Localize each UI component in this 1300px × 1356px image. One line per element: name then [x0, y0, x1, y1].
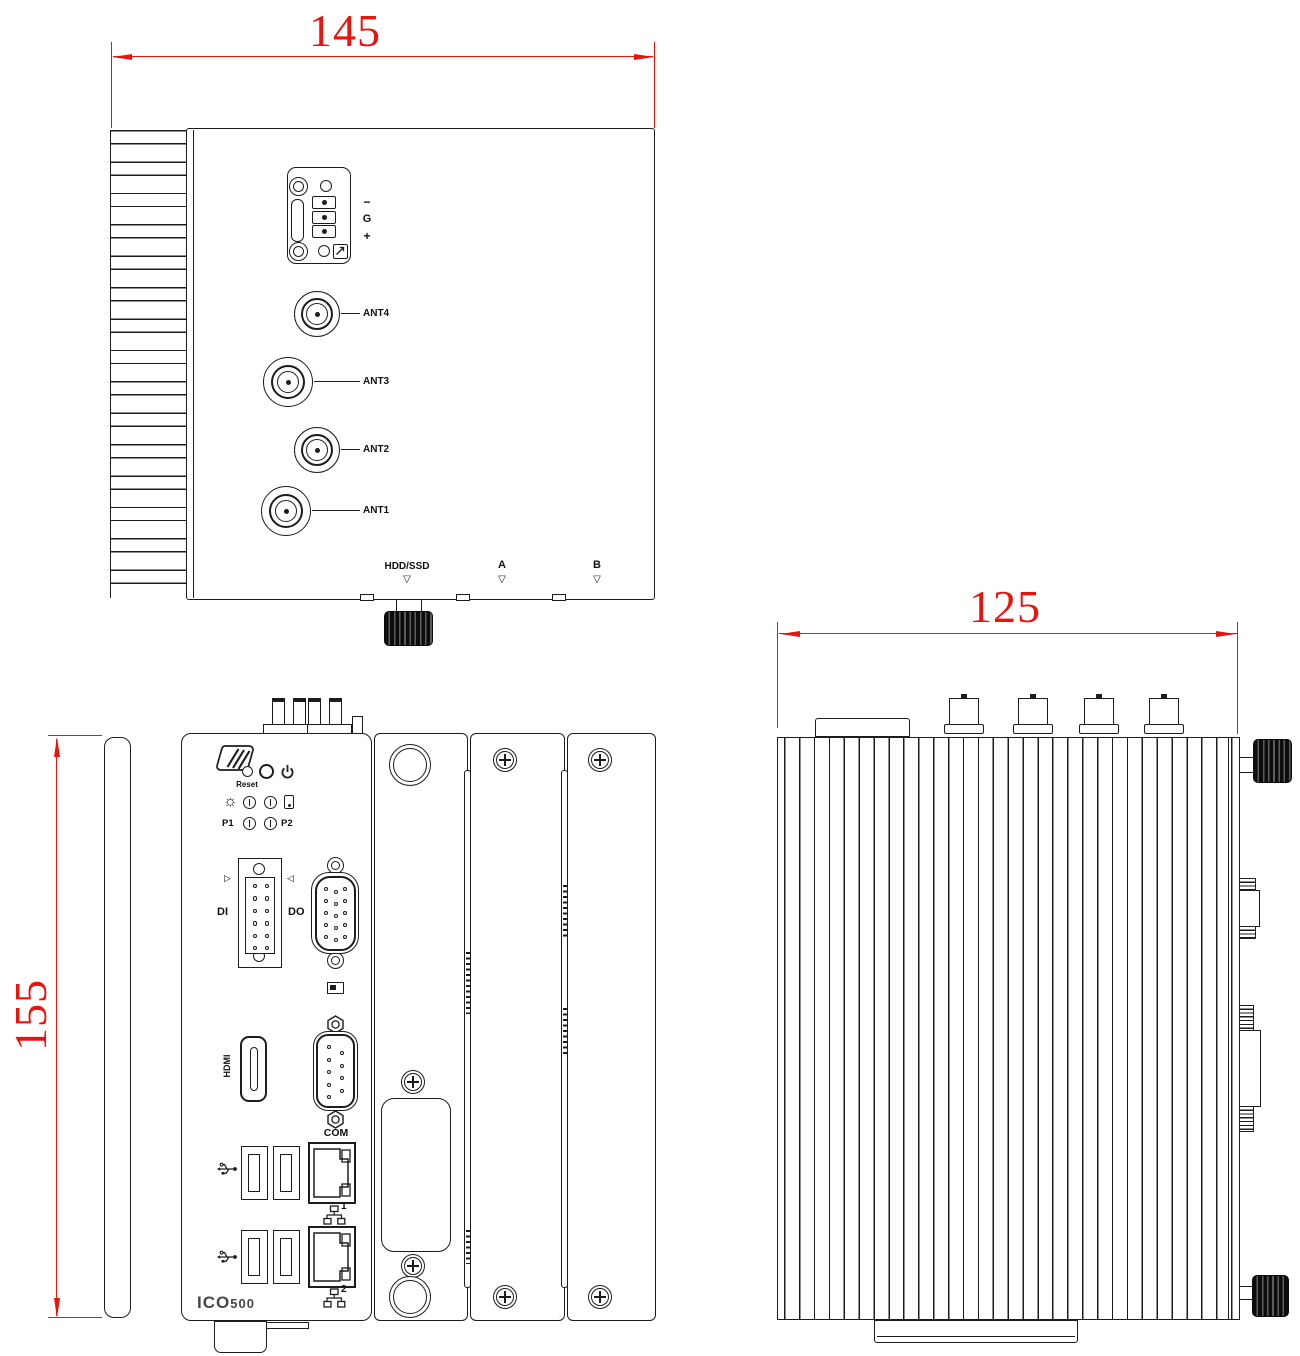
lan-port-2	[308, 1226, 356, 1288]
slot-b-marker-icon: ▽	[589, 575, 605, 585]
pin-dot	[343, 935, 347, 939]
pin-dot	[327, 1058, 331, 1062]
di-arrow-icon: ▷	[224, 874, 231, 883]
terminal-pin	[312, 196, 336, 209]
ant1-label: ANT1	[363, 505, 389, 516]
terminal-pin	[312, 225, 336, 238]
usb-port-tongue	[280, 1238, 292, 1276]
groove-hatch	[563, 1008, 567, 1056]
pin-dot	[253, 884, 257, 888]
panel-groove	[464, 770, 471, 1288]
dim-line	[113, 56, 653, 57]
pin-dot	[340, 1051, 344, 1055]
pin-dot	[253, 934, 257, 938]
power-label-plus: +	[358, 230, 376, 243]
led-indicator-icon	[264, 817, 277, 830]
pin-dot	[265, 921, 269, 925]
phillips-screw	[588, 1285, 612, 1309]
bottom-connector-lip-bottom	[267, 1328, 309, 1329]
dim-line	[779, 633, 1237, 634]
reset-label: Reset	[228, 781, 266, 790]
pin-dot	[340, 1089, 344, 1093]
usb-port-tongue	[248, 1154, 260, 1192]
front-ant-pin	[272, 698, 285, 726]
front-panel-4	[567, 733, 656, 1321]
power-terminal-screw-bottom	[289, 242, 308, 261]
lan1-number: 1	[341, 1201, 347, 1212]
pin-dot	[265, 934, 269, 938]
di-label: DI	[217, 906, 228, 918]
pin-dot	[334, 902, 338, 906]
pin-dot	[265, 896, 269, 900]
phillips-screw	[401, 1254, 425, 1278]
bottom-connector	[214, 1321, 267, 1353]
phillips-screw	[588, 748, 612, 772]
led-indicator-icon	[264, 796, 277, 809]
heatsink-fins-side-view	[777, 737, 1240, 1320]
antenna-hole-bottom	[389, 1276, 431, 1318]
groove-hatch	[563, 885, 567, 940]
dim-arrow-down	[54, 1298, 60, 1318]
ant4-label: ANT4	[363, 308, 389, 319]
power-terminal-pins	[312, 196, 336, 240]
do-arrow-icon: ◁	[287, 874, 294, 883]
bottom-connector-lip-end	[308, 1322, 309, 1329]
ant3-label: ANT3	[363, 376, 389, 387]
pin-dot	[340, 1076, 344, 1080]
pin-dot	[253, 921, 257, 925]
reset-button	[242, 766, 253, 777]
antenna-hole-top	[389, 744, 431, 786]
body-seam-line	[193, 130, 194, 598]
sma-connector-profile	[1144, 694, 1184, 738]
lan2-number: 2	[341, 1284, 347, 1295]
pin-dot	[324, 887, 328, 891]
pin-dot	[327, 1083, 331, 1087]
side-edge-line	[1228, 738, 1229, 1319]
side-top-plate	[815, 718, 910, 737]
p2-label: P2	[281, 819, 293, 829]
side-bottom-tab-line	[877, 1336, 1075, 1337]
bottom-connector-lip-top	[267, 1322, 309, 1323]
display-icon	[327, 982, 344, 994]
lamp-icon: ☼	[223, 794, 238, 810]
sma-connector-profile	[1079, 694, 1119, 738]
edge-notch	[552, 594, 566, 601]
usb-icon	[216, 1249, 238, 1265]
pin-dot	[327, 1070, 331, 1074]
dim-line	[56, 739, 57, 1316]
pin-dot	[343, 899, 347, 903]
pin-dot	[334, 938, 338, 942]
dim-side-depth-value: 125	[950, 584, 1060, 630]
vga-pin-field	[317, 879, 353, 947]
knob-stub	[1239, 1286, 1253, 1300]
heatsink-fins-top-view	[110, 130, 186, 598]
thumbscrew-knob-top-view	[384, 611, 433, 646]
groove-hatch	[466, 1230, 470, 1264]
model-prefix: ICO	[197, 1293, 230, 1312]
sma-connector-profile	[1013, 694, 1053, 738]
pin-dot	[343, 911, 347, 915]
dim-arrow-right	[634, 54, 654, 60]
pin-dot	[265, 884, 269, 888]
pin-dot	[265, 909, 269, 913]
slot-a-label: A	[492, 559, 512, 571]
side-connector-rib	[1239, 926, 1256, 939]
power-terminal-hole-top	[320, 180, 332, 192]
hdd-ssd-marker-icon: ▽	[399, 575, 415, 585]
pin-dot	[340, 1064, 344, 1068]
edge-notch	[456, 594, 470, 601]
power-button	[259, 764, 274, 779]
pin-dot	[343, 923, 347, 927]
dim-arrow-right	[1216, 631, 1236, 637]
side-bottom-tab	[874, 1320, 1078, 1343]
power-label-ground: G	[358, 213, 376, 225]
hdmi-port-slot	[250, 1047, 258, 1091]
pin-dot	[324, 899, 328, 903]
hdd-ssd-label: HDD/SSD	[368, 561, 446, 572]
side-connector-rib	[1239, 1005, 1254, 1031]
dido-screw-hole-top	[253, 863, 265, 875]
edge-notch	[360, 594, 374, 601]
front-ant-pin	[308, 698, 321, 726]
phillips-screw	[493, 1285, 517, 1309]
thumbscrew-knob-bottom	[1252, 1275, 1289, 1317]
led-indicator-icon	[243, 796, 256, 809]
dim-top-width-value: 145	[295, 8, 395, 54]
do-label: DO	[288, 906, 305, 918]
pin-dot	[253, 896, 257, 900]
pin-dot	[327, 1045, 331, 1049]
dido-pin-field	[245, 877, 275, 954]
thumbscrew-knob-top	[1253, 739, 1292, 783]
terminal-pin	[312, 211, 336, 224]
pin-dot	[327, 1095, 331, 1099]
p1-label: P1	[222, 819, 234, 829]
side-connector-rib	[1239, 1106, 1254, 1132]
pin-dot	[253, 909, 257, 913]
side-connector-body	[1239, 890, 1260, 927]
front-ant-pin	[329, 698, 342, 726]
pin-dot	[324, 911, 328, 915]
usb-icon	[216, 1161, 238, 1177]
front-panel-3	[470, 733, 565, 1321]
dim-front-height-value: 155	[8, 955, 54, 1075]
front-ant-bracket	[352, 716, 363, 734]
side-connector-body	[1239, 1030, 1261, 1107]
vga-screw-bottom	[327, 952, 344, 969]
pin-dot	[334, 914, 338, 918]
pin-dot	[343, 887, 347, 891]
power-terminal-slot	[291, 199, 304, 242]
usb-port-tongue	[280, 1154, 292, 1192]
technical-drawing-canvas: 145 − G +	[0, 0, 1300, 1356]
phillips-screw	[401, 1070, 425, 1094]
slot-a-marker-icon: ▽	[494, 575, 510, 585]
com-pin-field	[319, 1038, 352, 1104]
dim-arrow-up	[54, 737, 60, 757]
phillips-screw	[493, 748, 517, 772]
lan-port-1	[308, 1142, 356, 1204]
ant2-label: ANT2	[363, 444, 389, 455]
ground-lug-box	[333, 244, 348, 259]
power-terminal-screw-top	[289, 177, 308, 196]
heatsink-edge-strip	[104, 737, 131, 1318]
slot-b-label: B	[587, 559, 607, 571]
pin-dot	[253, 946, 257, 950]
pin-dot	[334, 926, 338, 930]
dim-ext-line	[1237, 622, 1238, 734]
front-ant-pin	[293, 698, 306, 726]
dim-ext-line	[777, 622, 778, 728]
pin-dot	[334, 890, 338, 894]
top-view-body	[186, 128, 655, 600]
pin-dot	[265, 946, 269, 950]
model-name: ICO500	[197, 1293, 255, 1313]
led-indicator-icon	[243, 817, 256, 830]
power-icon	[280, 764, 295, 779]
knob-stub	[1239, 757, 1254, 773]
hdmi-label: HDMI	[223, 1040, 233, 1092]
dim-arrow-left	[780, 631, 800, 637]
dim-ext-line	[654, 42, 655, 128]
groove-hatch	[466, 952, 470, 1014]
pin-dot	[324, 935, 328, 939]
model-suffix: 500	[230, 1296, 255, 1311]
sma-connector-profile	[944, 694, 984, 738]
com-label: COM	[316, 1128, 356, 1140]
power-terminal-hole-bottom	[318, 245, 330, 257]
blank-plate-cutout	[381, 1098, 451, 1252]
pin-dot	[324, 923, 328, 927]
power-label-minus: −	[358, 196, 376, 209]
dim-arrow-left	[112, 54, 132, 60]
ground-icon	[334, 245, 346, 257]
storage-led-icon	[284, 795, 294, 809]
usb-port-tongue	[248, 1238, 260, 1276]
